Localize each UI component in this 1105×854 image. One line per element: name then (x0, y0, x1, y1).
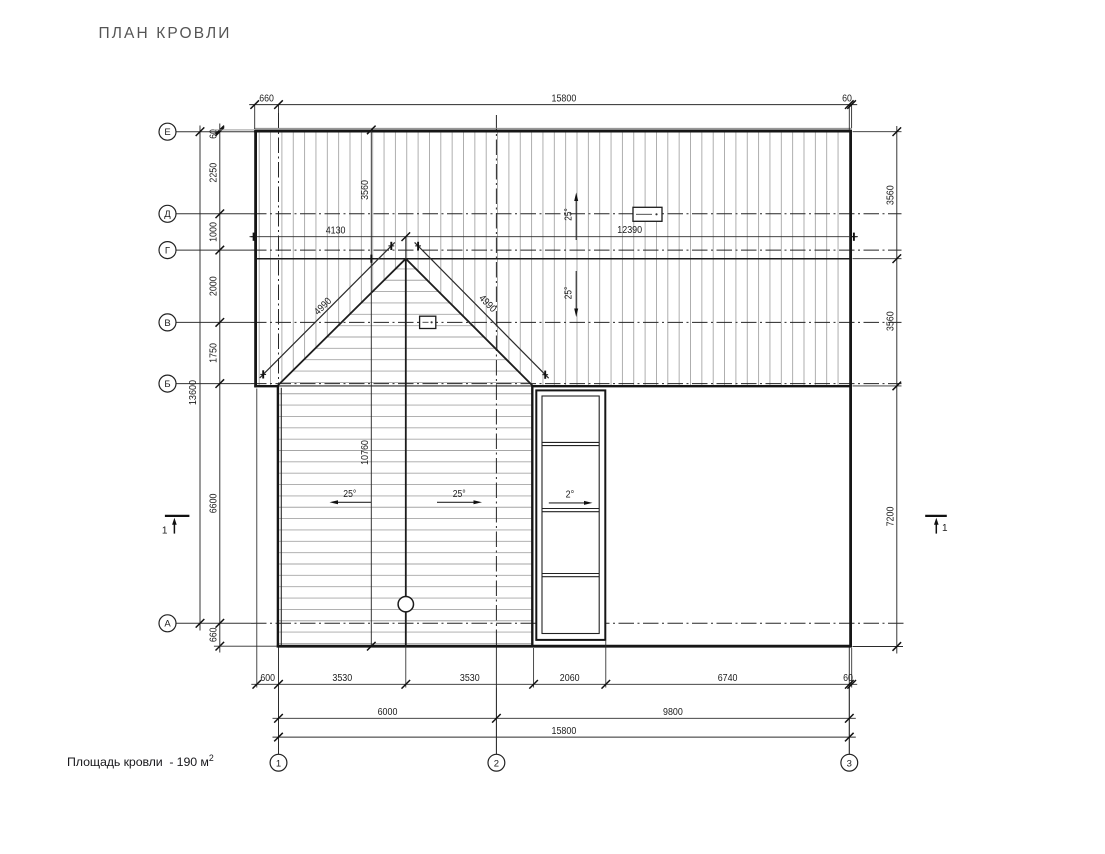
svg-text:1: 1 (162, 525, 168, 536)
svg-text:660: 660 (208, 627, 219, 642)
svg-text:1: 1 (276, 759, 281, 770)
svg-text:ПЛАН КРОВЛИ: ПЛАН КРОВЛИ (99, 25, 233, 42)
svg-text:660: 660 (259, 94, 274, 105)
svg-text:4990: 4990 (476, 293, 498, 315)
svg-text:60: 60 (842, 94, 852, 105)
svg-text:60: 60 (843, 673, 853, 684)
svg-text:600: 600 (260, 673, 275, 684)
svg-text:Площадь кровли - 190 м2: Площадь кровли - 190 м2 (67, 753, 214, 769)
svg-text:В: В (164, 318, 170, 329)
svg-text:2: 2 (494, 759, 499, 770)
svg-text:1000: 1000 (208, 222, 219, 242)
svg-text:3: 3 (847, 759, 852, 770)
svg-text:3560: 3560 (885, 185, 896, 205)
svg-text:1: 1 (942, 523, 948, 534)
svg-text:4990: 4990 (312, 296, 334, 318)
svg-text:6000: 6000 (378, 707, 398, 718)
svg-text:15800: 15800 (552, 94, 577, 105)
svg-text:2000: 2000 (208, 276, 219, 296)
svg-text:1750: 1750 (208, 343, 219, 363)
svg-text:13600: 13600 (188, 380, 199, 406)
svg-text:Б: Б (164, 379, 170, 390)
svg-text:Г: Г (165, 246, 170, 257)
svg-text:12390: 12390 (617, 225, 642, 236)
svg-text:9800: 9800 (663, 707, 683, 718)
svg-text:3560: 3560 (360, 180, 371, 200)
svg-text:3530: 3530 (332, 673, 352, 684)
svg-text:2250: 2250 (208, 162, 219, 182)
svg-text:15800: 15800 (552, 726, 577, 737)
svg-text:3560: 3560 (885, 311, 896, 331)
svg-text:2060: 2060 (560, 673, 580, 684)
svg-text:Е: Е (164, 127, 170, 138)
svg-text:4130: 4130 (326, 226, 346, 237)
svg-text:Д: Д (164, 209, 171, 220)
svg-text:10760: 10760 (360, 440, 371, 465)
svg-text:6740: 6740 (718, 673, 738, 684)
svg-text:А: А (164, 619, 171, 630)
svg-text:3530: 3530 (460, 673, 480, 684)
svg-text:6600: 6600 (208, 493, 219, 513)
svg-text:7200: 7200 (885, 506, 896, 526)
